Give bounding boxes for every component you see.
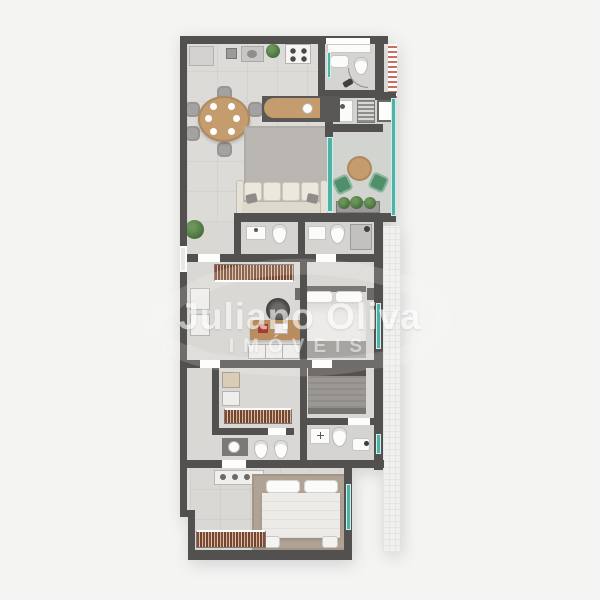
balcony-railing-glass [391,98,396,216]
vanity-knob [232,474,238,480]
plate [228,103,235,110]
master-bed-pillow [304,480,338,493]
master-window [346,484,351,530]
sofa-cushion [263,182,281,201]
bathroom3-window [376,434,381,454]
master-bed-duvet [262,493,340,538]
shower-drain-cross [317,432,324,439]
bathroom3-door-gap [348,418,370,425]
top-window-gap [326,38,370,44]
plate [210,128,217,135]
vanity-knob [220,474,226,480]
dining-chair [185,126,200,141]
master-door-gap [222,460,246,468]
wall-master-top [186,460,376,468]
living-plant [185,220,204,239]
wall-balcony-bottom [326,213,396,222]
coffee-maker [226,48,237,59]
vanity-knob [244,474,250,480]
stove [285,44,311,64]
top-bath-shower-glass [327,52,331,78]
wall-bottom [188,550,352,560]
bathroom-b-sink [308,226,326,240]
drying-rack [357,100,375,123]
planter-plant [338,197,350,209]
shower-head [364,226,370,232]
planter-plant [364,197,376,209]
master-bed-pillow [266,480,300,493]
top-bath-sink [330,55,349,68]
wall-laundry-balcony [325,124,383,132]
bathroom-a-faucet [254,228,258,232]
bathroom3-faucet [364,441,369,446]
dining-chair [217,142,232,157]
top-bath-counter [327,44,371,53]
plate [205,115,212,122]
dining-chair [248,102,263,117]
closet-hanging-clothes [224,408,292,424]
balcony-table [347,156,372,181]
master-pouf [322,536,338,548]
wall-bedroom2-bath3 [307,418,383,425]
plate [210,103,217,110]
sofa-cushion [282,182,300,201]
island-sink [302,103,313,114]
planter-plant [350,196,363,209]
kitchen-plant [266,44,280,58]
small-bath-sink [228,441,240,453]
bedroom2-bed-foot [308,408,366,414]
balcony-sliding-door-glass [327,137,333,212]
master-pouf [264,536,280,548]
closet-bath-door-gap [268,428,286,435]
floorplan-image: Juliano Oliva IMÓVEIS [0,0,600,600]
watermark-logo-swirl [130,240,470,400]
kitchen-sink-basin [247,50,257,58]
party-wall-hatch [388,44,397,98]
fridge [189,46,214,66]
plate [228,128,235,135]
wall-sofa [234,213,328,222]
plate [233,115,240,122]
master-closet-clothes [196,530,266,548]
laundry-tub-faucet [340,104,345,109]
